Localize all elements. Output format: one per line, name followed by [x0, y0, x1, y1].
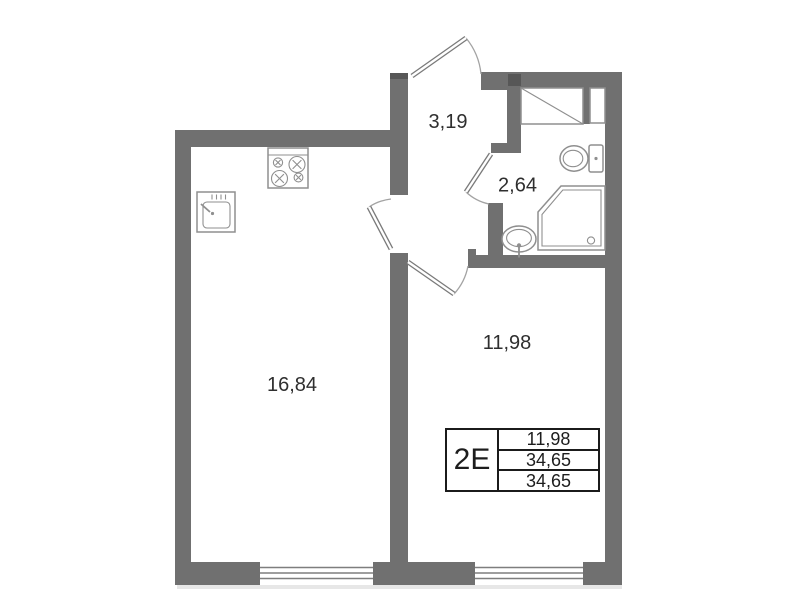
room-area-label-bathroom: 2,64	[498, 175, 537, 197]
wardrobe-shaft-icon	[521, 88, 583, 124]
door-leaf	[466, 154, 491, 192]
door-leaf	[408, 262, 454, 294]
kitchen-sink-icon	[197, 192, 235, 232]
wall-segment-bath-left-lower	[488, 203, 503, 257]
legend-value-overall-area: 34,65	[499, 469, 598, 490]
wall-segment-hall-left-upper	[390, 73, 408, 195]
kitchen-door	[369, 199, 391, 249]
legend-value-living-area: 11,98	[499, 430, 598, 449]
unit-type-code: 2Е	[447, 430, 499, 490]
window-kitchen	[260, 562, 373, 585]
wall-segment-right-outer	[605, 72, 622, 585]
scan-shadow	[177, 585, 622, 589]
vent-shaft-icon	[590, 88, 605, 123]
wall-segment-closet-divider	[583, 88, 590, 124]
window-bedroom	[475, 562, 583, 585]
bathroom-door	[466, 154, 491, 204]
door-leaf	[369, 207, 391, 249]
door-swing-arc	[466, 38, 481, 74]
toilet-icon	[560, 145, 603, 172]
faucet-dot	[211, 212, 214, 215]
room-area-label-kitchen-living: 16,84	[267, 374, 317, 396]
legend-values-column: 11,98 34,65 34,65	[499, 430, 598, 490]
wall-junction-cap	[508, 74, 521, 86]
floor-plan-drawing: 16,84 11,98 3,19 2,64	[0, 0, 799, 600]
door-swing-arc	[369, 199, 391, 207]
basin-tap-dot	[517, 243, 521, 247]
door-jamb-cap	[390, 73, 408, 79]
floor-plan: 16,84 11,98 3,19 2,64 2Е 11,98 34,65 34,…	[0, 0, 799, 600]
bathroom-sink-icon	[502, 226, 536, 258]
door-leaf	[412, 38, 466, 76]
area-legend-table: 2Е 11,98 34,65 34,65	[445, 428, 600, 492]
wall-segment-kitchen-top	[175, 130, 397, 147]
wall-segment-jamb-nub	[468, 249, 476, 257]
legend-value-total-area: 34,65	[499, 449, 598, 470]
room-area-label-hallway: 3,19	[429, 111, 468, 133]
bedroom-door	[408, 262, 468, 294]
room-area-label-bedroom: 11,98	[483, 332, 532, 354]
walls-layer	[175, 72, 622, 589]
wall-segment-bath-left-upper	[507, 90, 521, 143]
door-swing-arc	[466, 192, 489, 204]
wall-segment-left-outer	[175, 130, 191, 585]
stove-icon	[268, 148, 308, 188]
wall-segment-bedroom-top	[468, 255, 622, 268]
shower-icon	[538, 186, 605, 250]
wall-segment-bath-jog	[491, 143, 521, 153]
door-swing-arc	[454, 266, 468, 294]
toilet-bowl	[560, 146, 588, 171]
wall-segment-room-divider	[390, 253, 408, 562]
stove-body	[268, 148, 308, 188]
toilet-flush-dot	[594, 157, 597, 160]
entrance-door	[412, 38, 481, 76]
